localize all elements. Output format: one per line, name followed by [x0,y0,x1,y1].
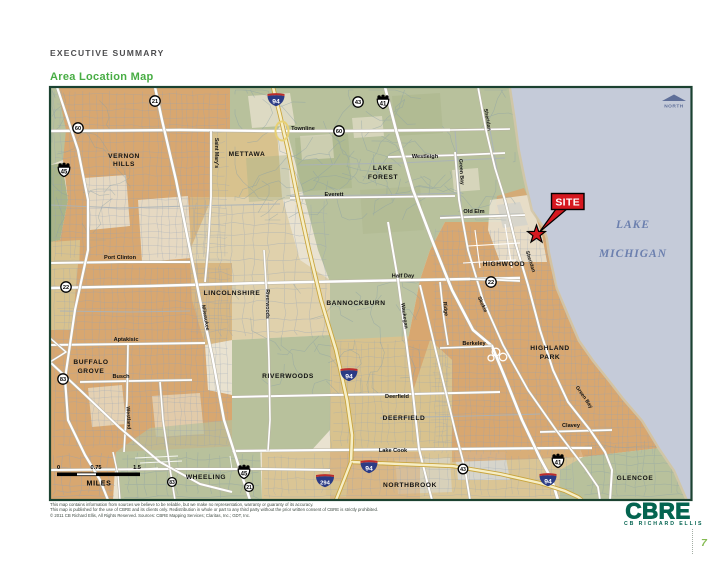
svg-text:Deerfield: Deerfield [385,394,410,400]
svg-text:Berkeley: Berkeley [462,341,486,347]
svg-text:22: 22 [63,285,69,291]
svg-text:WHEELING: WHEELING [186,474,226,481]
svg-text:GLENCOE: GLENCOE [617,475,654,482]
svg-text:43: 43 [355,100,361,106]
svg-text:HIGHWOOD: HIGHWOOD [483,261,526,268]
svg-text:LINCOLNSHIRE: LINCOLNSHIRE [204,290,261,297]
svg-text:294: 294 [320,481,330,487]
svg-text:94: 94 [365,466,373,473]
svg-text:83: 83 [169,480,175,486]
svg-text:22: 22 [488,280,494,286]
svg-text:94: 94 [544,479,552,486]
svg-text:21: 21 [152,99,158,105]
svg-text:BANNOCKBURN: BANNOCKBURN [326,300,385,307]
svg-text:LAKE: LAKE [615,219,650,231]
svg-text:PARK: PARK [540,354,561,361]
svg-text:MILES: MILES [87,481,112,488]
svg-text:Townline: Townline [291,126,315,132]
svg-text:Westleigh: Westleigh [412,154,439,160]
svg-text:Westland: Westland [124,406,131,429]
svg-text:DEERFIELD: DEERFIELD [383,415,426,422]
svg-text:0.75: 0.75 [91,465,102,471]
svg-text:SITE: SITE [555,198,580,209]
svg-text:43: 43 [460,467,466,473]
svg-text:83: 83 [60,377,66,383]
svg-text:HIGHLAND: HIGHLAND [530,345,570,352]
svg-text:VERNON: VERNON [108,153,140,160]
svg-text:94: 94 [345,374,353,381]
svg-text:RIVERWOODS: RIVERWOODS [262,373,314,380]
svg-text:Lake Cook: Lake Cook [379,448,408,454]
svg-text:45: 45 [241,472,248,478]
svg-text:41: 41 [380,102,387,108]
svg-text:21: 21 [246,485,252,491]
svg-text:GROVE: GROVE [78,368,105,375]
svg-text:94: 94 [272,99,280,106]
svg-text:60: 60 [336,129,342,135]
svg-text:45: 45 [61,170,68,176]
svg-text:Riverwoods: Riverwoods [264,289,270,319]
svg-text:NORTHBROOK: NORTHBROOK [383,482,437,489]
svg-text:HILLS: HILLS [113,161,135,168]
svg-text:1.5: 1.5 [133,465,141,471]
svg-text:BUFFALO: BUFFALO [73,359,108,366]
svg-text:NORTH: NORTH [664,104,684,110]
svg-text:LAKE: LAKE [373,165,393,172]
svg-text:41: 41 [555,461,562,467]
svg-text:Half Day: Half Day [392,274,415,280]
svg-text:Port Clinton: Port Clinton [104,255,137,261]
svg-text:Busch: Busch [112,374,130,380]
svg-text:Clavey: Clavey [562,423,581,429]
svg-text:Old Elm: Old Elm [463,209,484,215]
svg-text:Saint Mary's: Saint Mary's [213,138,219,168]
svg-text:FOREST: FOREST [368,174,398,181]
svg-text:0: 0 [57,465,60,471]
svg-text:METTAWA: METTAWA [229,151,266,158]
svg-text:Aptakisic: Aptakisic [114,337,139,343]
svg-text:Everett: Everett [325,192,344,198]
svg-text:60: 60 [75,126,81,132]
svg-text:MICHIGAN: MICHIGAN [598,248,667,260]
